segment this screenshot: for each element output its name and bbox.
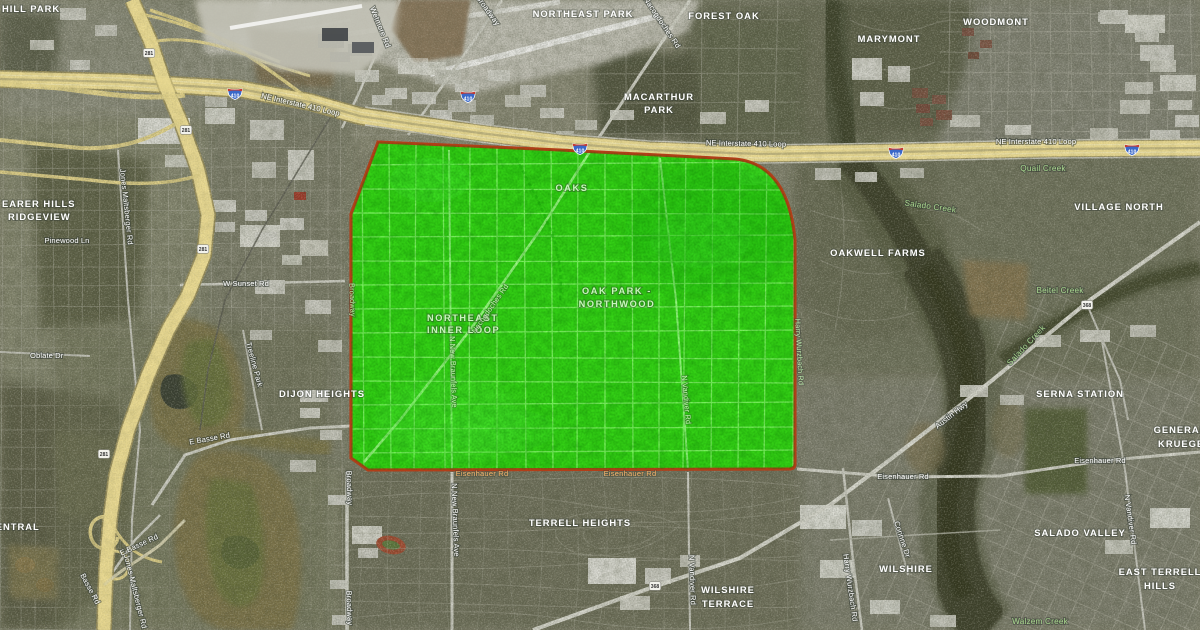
svg-text:410: 410 xyxy=(576,148,585,154)
svg-text:281: 281 xyxy=(100,452,109,458)
svg-text:OAKWELL FARMS: OAKWELL FARMS xyxy=(830,247,926,258)
svg-text:281: 281 xyxy=(145,51,154,57)
svg-text:Eisenhauer Rd: Eisenhauer Rd xyxy=(877,472,929,481)
svg-text:SALADO VALLEY: SALADO VALLEY xyxy=(1034,527,1125,538)
svg-text:INNER LOOP: INNER LOOP xyxy=(427,325,500,335)
svg-text:OAKS: OAKS xyxy=(556,183,589,193)
svg-text:WILSHIRE: WILSHIRE xyxy=(879,563,933,574)
svg-text:MACARTHUR: MACARTHUR xyxy=(624,91,694,102)
svg-text:W Sunset Rd: W Sunset Rd xyxy=(223,279,269,288)
svg-text:TERRACE: TERRACE xyxy=(702,598,754,609)
svg-text:Eisenhauer Rd: Eisenhauer Rd xyxy=(1074,456,1126,465)
svg-text:GENERAL: GENERAL xyxy=(1154,424,1200,435)
svg-text:368: 368 xyxy=(651,584,660,590)
svg-text:Broadway: Broadway xyxy=(347,283,357,317)
svg-text:RIDGEVIEW: RIDGEVIEW xyxy=(8,211,71,222)
svg-text:N Vandiver Rd: N Vandiver Rd xyxy=(687,555,698,605)
svg-text:410: 410 xyxy=(231,93,240,99)
svg-text:281: 281 xyxy=(199,247,208,253)
svg-text:410: 410 xyxy=(464,96,473,102)
svg-text:EARER HILLS: EARER HILLS xyxy=(2,198,76,209)
svg-text:HILL PARK: HILL PARK xyxy=(2,3,60,14)
svg-text:VILLAGE NORTH: VILLAGE NORTH xyxy=(1074,201,1164,212)
svg-text:281: 281 xyxy=(182,128,191,134)
svg-text:Broadway: Broadway xyxy=(344,590,354,625)
svg-text:NORTHEAST PARK: NORTHEAST PARK xyxy=(533,8,634,19)
svg-text:PARK: PARK xyxy=(644,104,674,115)
svg-text:Oblate Dr: Oblate Dr xyxy=(30,351,64,360)
svg-text:SERNA STATION: SERNA STATION xyxy=(1036,388,1124,399)
svg-text:WOODMONT: WOODMONT xyxy=(963,16,1029,27)
svg-text:Broadway: Broadway xyxy=(344,470,354,505)
svg-text:410: 410 xyxy=(1128,149,1137,155)
svg-text:FOREST OAK: FOREST OAK xyxy=(688,10,759,21)
svg-text:Eisenhauer Rd: Eisenhauer Rd xyxy=(604,469,657,478)
svg-text:TERRELL HEIGHTS: TERRELL HEIGHTS xyxy=(529,517,631,528)
svg-text:DIJON HEIGHTS: DIJON HEIGHTS xyxy=(279,388,365,399)
svg-text:Pinewood Ln: Pinewood Ln xyxy=(44,236,89,245)
svg-text:Quail Creek: Quail Creek xyxy=(1020,164,1066,173)
svg-text:EAST TERRELL: EAST TERRELL xyxy=(1119,566,1200,577)
svg-text:WILSHIRE: WILSHIRE xyxy=(701,584,755,595)
svg-text:NE Interstate 410 Loop: NE Interstate 410 Loop xyxy=(706,138,786,148)
svg-text:CENTRAL: CENTRAL xyxy=(0,521,40,532)
svg-text:HILLS: HILLS xyxy=(1144,580,1176,591)
svg-text:NE Interstate 410 Loop: NE Interstate 410 Loop xyxy=(996,137,1076,146)
svg-text:Eisenhauer Rd: Eisenhauer Rd xyxy=(456,469,509,478)
svg-text:NORTHWOOD: NORTHWOOD xyxy=(579,299,656,309)
svg-text:MARYMONT: MARYMONT xyxy=(858,33,921,44)
svg-text:Beitel Creek: Beitel Creek xyxy=(1037,286,1085,295)
svg-text:410: 410 xyxy=(892,152,901,158)
svg-text:OAK PARK -: OAK PARK - xyxy=(582,286,652,296)
svg-text:Walzem Creek: Walzem Creek xyxy=(1012,617,1068,626)
svg-text:KRUEGER: KRUEGER xyxy=(1158,438,1200,449)
svg-text:368: 368 xyxy=(1083,303,1092,309)
